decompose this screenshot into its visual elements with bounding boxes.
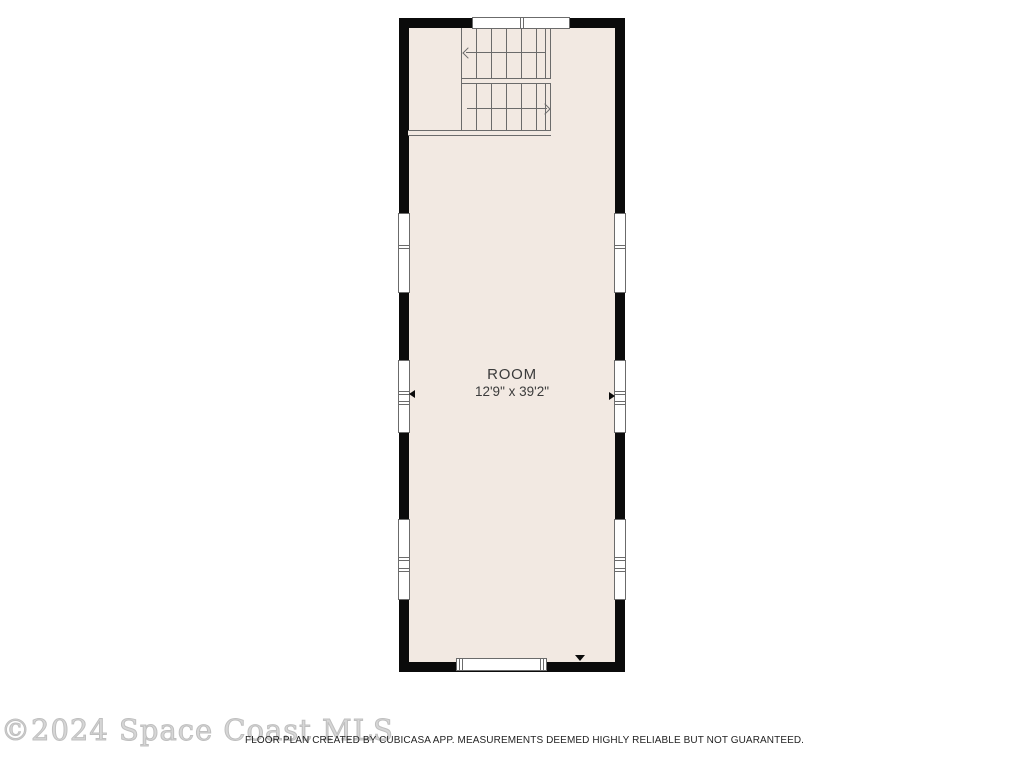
stair-tread-line <box>491 28 492 78</box>
window-mullion <box>399 557 409 561</box>
window-right-top <box>614 213 626 293</box>
stair-railing <box>408 130 551 136</box>
window-mullion <box>399 245 409 249</box>
window-mullion <box>615 557 625 561</box>
window-mullion <box>399 401 409 405</box>
stair-tread-line <box>521 28 522 78</box>
window-mullion <box>615 401 625 405</box>
window-mullion <box>615 568 625 572</box>
stair-walk-line-upper <box>466 52 546 53</box>
window-bottom <box>456 658 547 671</box>
stair-tread-line <box>536 28 537 78</box>
window-top <box>472 17 570 29</box>
window-mullion <box>520 18 524 28</box>
window-left-bottom <box>398 519 410 600</box>
window-mullion <box>615 245 625 249</box>
window-left-top <box>398 213 410 293</box>
room-name: ROOM <box>409 366 615 383</box>
stair-direction-arrow-left-icon <box>462 47 473 58</box>
floor-plan: ROOM 12'9" x 39'2" <box>399 18 625 672</box>
floorplan-page: { "room": { "name": "ROOM", "dimensions"… <box>0 0 1024 768</box>
window-mullion <box>459 659 463 670</box>
stair-tread-line <box>476 28 477 78</box>
disclaimer-text: FLOOR PLAN CREATED BY CUBICASA APP. MEAS… <box>245 735 804 746</box>
staircase <box>461 28 551 133</box>
stair-tread-line <box>506 28 507 78</box>
window-mullion <box>540 659 544 670</box>
room-dimensions: 12'9" x 39'2" <box>409 383 615 400</box>
room-label: ROOM 12'9" x 39'2" <box>409 366 615 400</box>
window-mullion <box>399 568 409 572</box>
window-mullion <box>399 391 409 395</box>
dimension-arrow-down-icon <box>575 655 585 661</box>
window-right-bottom <box>614 519 626 600</box>
stair-walk-line-lower <box>467 108 547 109</box>
dimension-arrow-up-icon <box>576 22 586 28</box>
window-mullion <box>615 391 625 395</box>
window-right-middle <box>614 360 626 433</box>
